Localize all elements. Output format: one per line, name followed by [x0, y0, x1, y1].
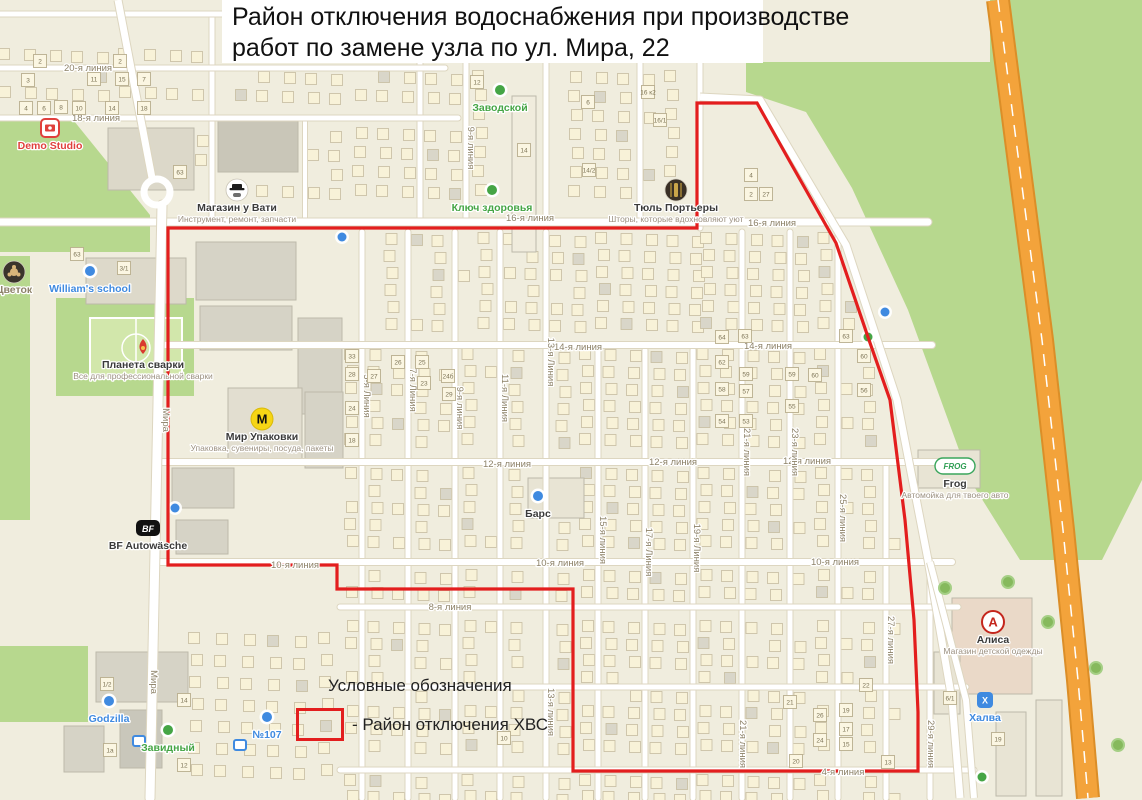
house-block: [647, 235, 658, 246]
map-title-line2: работ по замене узла по ул. Мира, 22: [232, 33, 763, 64]
house-block: [621, 188, 632, 199]
house-number: 16 к2: [640, 90, 656, 97]
house-number: 58: [718, 387, 726, 394]
house-block: [675, 370, 686, 381]
house-block: [192, 52, 203, 63]
map-screenshot: 20-я линия18-я линия16-я линия16-я линия…: [0, 0, 1142, 800]
house-block: [675, 710, 686, 721]
house-block: [864, 793, 875, 800]
house-block: [619, 112, 630, 123]
poi-label-magazin-u-vati[interactable]: Магазин у Вати: [197, 202, 277, 214]
legend-heading: Условные обозначения: [328, 676, 596, 696]
house-block: [571, 72, 582, 83]
building: [86, 258, 186, 304]
house-block: [271, 658, 282, 669]
house-block: [371, 639, 382, 650]
house-block: [865, 742, 876, 753]
house-number: 4: [749, 173, 753, 180]
house-block: [630, 487, 641, 498]
house-block: [652, 726, 663, 737]
house-block: [556, 421, 567, 432]
house-block: [98, 53, 109, 64]
house-block: [865, 572, 876, 583]
house-block: [306, 74, 317, 85]
house-block: [772, 321, 783, 332]
poi-icon-klyuch-zdorovya[interactable]: [485, 183, 500, 198]
house-block: [510, 419, 521, 430]
poi-label-tyul-portery[interactable]: Тюль Портьеры: [634, 202, 718, 214]
house-number: 27: [762, 192, 770, 199]
house-number: 14: [520, 148, 528, 155]
house-block: [559, 438, 570, 449]
poi-label-halva[interactable]: Халва: [969, 712, 1001, 724]
house-block: [862, 640, 873, 651]
house-block: [795, 387, 806, 398]
house-block: [378, 129, 389, 140]
house-block: [667, 147, 678, 158]
svg-text:A: A: [988, 615, 998, 630]
street-label: 29-я линия: [925, 720, 936, 768]
house-block: [283, 92, 294, 103]
house-block: [721, 622, 732, 633]
house-block: [768, 658, 779, 669]
house-block: [819, 570, 830, 581]
poi-label-zavodskoy[interactable]: Заводской: [472, 102, 527, 114]
poi-icon-zavidny[interactable]: [161, 723, 176, 738]
house-block: [465, 621, 476, 632]
poi-label-mir-upakovki[interactable]: Мир Упаковки: [226, 431, 299, 443]
house-number: 26: [816, 713, 824, 720]
house-block: [486, 367, 497, 378]
house-block: [217, 744, 228, 755]
house-block: [644, 303, 655, 314]
tree-icon: [1002, 576, 1014, 588]
house-block: [550, 321, 561, 332]
house-block: [416, 437, 427, 448]
house-block: [697, 775, 708, 786]
house-block: [218, 678, 229, 689]
house-number: 27: [370, 374, 378, 381]
poi-label-bf-autowasche[interactable]: BF Autowäsche: [109, 540, 188, 552]
house-number: 22: [862, 683, 870, 690]
house-block: [627, 385, 638, 396]
house-block: [606, 639, 617, 650]
house-block: [747, 572, 758, 583]
house-block: [604, 401, 615, 412]
house-block: [512, 657, 523, 668]
house-block: [348, 791, 359, 800]
house-block: [569, 91, 580, 102]
house-block: [466, 400, 477, 411]
house-block: [466, 570, 477, 581]
house-block: [415, 573, 426, 584]
poi-label-alisa[interactable]: Алиса: [977, 634, 1010, 646]
house-block: [459, 271, 470, 282]
house-block: [476, 90, 487, 101]
building: [64, 726, 104, 772]
poi-icon-tyul-portery[interactable]: [665, 179, 687, 201]
house-block: [196, 155, 207, 166]
house-block: [439, 591, 450, 602]
house-block: [329, 151, 340, 162]
house-block: [370, 520, 381, 531]
house-block: [841, 384, 852, 395]
house-block: [627, 725, 638, 736]
house-number: 3/1: [119, 266, 128, 273]
house-number: 60: [860, 354, 868, 361]
house-block: [486, 792, 497, 800]
house-block: [746, 623, 757, 634]
house-block: [604, 656, 615, 667]
poi-icon-cvetok[interactable]: [3, 261, 25, 283]
house-block: [650, 658, 661, 669]
house-block: [369, 571, 380, 582]
house-block: [651, 437, 662, 448]
house-block: [294, 659, 305, 670]
house-block: [368, 622, 379, 633]
house-block: [511, 368, 522, 379]
house-block: [392, 470, 403, 481]
house-block: [557, 625, 568, 636]
house-block: [815, 519, 826, 530]
house-block: [26, 88, 37, 99]
house-block: [241, 679, 252, 690]
house-block: [676, 659, 687, 670]
poi-icon-alisa[interactable]: A: [982, 611, 1004, 633]
house-block: [678, 472, 689, 483]
house-block: [285, 73, 296, 84]
house-block: [385, 285, 396, 296]
house-block: [432, 321, 443, 332]
house-block: [346, 383, 357, 394]
house-block: [370, 435, 381, 446]
house-block: [674, 591, 685, 602]
house-block: [774, 304, 785, 315]
house-block: [745, 504, 756, 515]
house-block: [725, 503, 736, 514]
house-block: [770, 471, 781, 482]
house-block: [652, 386, 663, 397]
street-label: 14-я линия: [554, 342, 602, 353]
street-label: 27-я линия: [885, 616, 896, 664]
house-block: [621, 234, 632, 245]
house-block: [653, 420, 664, 431]
house-block: [796, 254, 807, 265]
house-block: [724, 469, 735, 480]
street-label: 12-я линия: [483, 459, 531, 470]
house-block: [418, 420, 429, 431]
house-block: [725, 285, 736, 296]
house-number: 33: [348, 354, 356, 361]
house-block: [559, 779, 570, 790]
house-number: 63: [176, 170, 184, 177]
house-block: [331, 132, 342, 143]
house-number: 24б: [443, 373, 454, 381]
poi-icon-n107[interactable]: [260, 710, 275, 725]
house-block: [645, 252, 656, 263]
house-block: [571, 167, 582, 178]
poi-label-williams-school[interactable]: William's school: [49, 283, 131, 295]
house-block: [748, 351, 759, 362]
house-block: [560, 642, 571, 653]
house-block: [268, 746, 279, 757]
house-block: [674, 421, 685, 432]
house-block: [618, 74, 629, 85]
house-block: [419, 539, 430, 550]
house-block: [330, 189, 341, 200]
house-block: [698, 723, 709, 734]
street-label: 12-я линия: [649, 457, 697, 468]
house-block: [818, 536, 829, 547]
house-block: [863, 589, 874, 600]
house-block: [678, 387, 689, 398]
house-block: [818, 318, 829, 329]
house-block: [429, 188, 440, 199]
house-block: [722, 486, 733, 497]
house-block: [604, 486, 615, 497]
house-block: [192, 655, 203, 666]
house-block: [654, 794, 665, 800]
house-block: [677, 438, 688, 449]
house-block: [583, 621, 594, 632]
house-block: [866, 777, 877, 788]
house-block: [257, 186, 268, 197]
house-block: [772, 794, 783, 800]
house-block: [426, 169, 437, 180]
house-block: [219, 722, 230, 733]
house-block: [728, 302, 739, 313]
house-block: [770, 641, 781, 652]
house-block: [666, 109, 677, 120]
house-number: 54: [718, 419, 726, 426]
house-block: [865, 487, 876, 498]
poi-label-zavidny[interactable]: Завидный: [141, 742, 195, 754]
house-block: [557, 795, 568, 800]
house-block: [511, 623, 522, 634]
house-block: [701, 400, 712, 411]
house-block: [330, 94, 341, 105]
house-block: [450, 189, 461, 200]
house-block: [441, 404, 452, 415]
house-block: [504, 319, 515, 330]
house-number: 8: [59, 105, 63, 112]
house-block: [576, 271, 587, 282]
street-label: 10-я линия: [536, 558, 584, 569]
house-block: [348, 621, 359, 632]
house-block: [596, 130, 607, 141]
poi-icon-magazin-u-vati[interactable]: [226, 179, 248, 201]
house-block: [529, 320, 540, 331]
house-number: 15: [842, 742, 850, 749]
house-block: [676, 489, 687, 500]
house-block: [768, 488, 779, 499]
house-block: [746, 793, 757, 800]
poi-dot-icon: [171, 504, 180, 513]
house-block: [405, 73, 416, 84]
house-block: [820, 301, 831, 312]
house-block: [575, 322, 586, 333]
poi-label-cvetok[interactable]: Цветок: [0, 284, 33, 296]
house-block: [704, 250, 715, 261]
house-block: [651, 778, 662, 789]
svg-text:Х: Х: [982, 696, 988, 706]
house-block: [799, 271, 810, 282]
house-block: [844, 319, 855, 330]
house-block: [580, 519, 591, 530]
house-block: [0, 49, 10, 60]
house-block: [393, 504, 404, 515]
poi-icon-williams-school[interactable]: [83, 264, 98, 279]
poi-dot-icon: [978, 773, 987, 782]
house-block: [416, 778, 427, 789]
house-block: [581, 638, 592, 649]
house-block: [630, 572, 641, 583]
street-label: 16-я линия: [506, 213, 554, 224]
house-block: [604, 571, 615, 582]
house-block: [597, 73, 608, 84]
building: [218, 120, 298, 172]
house-number: 3: [26, 78, 30, 85]
house-block: [818, 791, 829, 800]
house-block: [440, 540, 451, 551]
house-block: [721, 707, 732, 718]
house-number: 6/1: [945, 696, 954, 703]
house-block: [0, 87, 11, 98]
house-block: [466, 740, 477, 751]
house-block: [580, 775, 591, 786]
house-block: [699, 587, 710, 598]
house-block: [596, 233, 607, 244]
poi-label-klyuch-zdorovya[interactable]: Ключ здоровья: [452, 202, 533, 214]
house-block: [216, 700, 227, 711]
poi-icon-zavodskoy[interactable]: [493, 83, 508, 98]
house-block: [772, 709, 783, 720]
house-block: [171, 51, 182, 62]
house-block: [723, 435, 734, 446]
poi-icon-frog[interactable]: FROG: [935, 458, 975, 474]
house-block: [770, 726, 781, 737]
house-block: [816, 383, 827, 394]
poi-icon-halva[interactable]: Х: [977, 692, 993, 708]
house-block: [669, 128, 680, 139]
house-block: [769, 778, 780, 789]
house-block: [775, 253, 786, 264]
house-block: [552, 304, 563, 315]
house-block: [584, 655, 595, 666]
house-block: [526, 303, 537, 314]
house-block: [650, 743, 661, 754]
house-block: [450, 94, 461, 105]
house-block: [595, 187, 606, 198]
house-number: 14: [180, 698, 188, 705]
house-block: [309, 93, 320, 104]
house-block: [724, 724, 735, 735]
park-area: [0, 646, 88, 722]
house-number: 24: [816, 738, 824, 745]
house-block: [600, 284, 611, 295]
house-block: [690, 305, 701, 316]
poi-label-godzilla[interactable]: Godzilla: [89, 713, 130, 725]
poi-label-frog[interactable]: Frog: [943, 478, 966, 490]
house-block: [747, 402, 758, 413]
house-block: [419, 794, 430, 800]
house-block: [525, 269, 536, 280]
street-label: 21-я линия: [737, 720, 748, 768]
house-block: [725, 588, 736, 599]
house-block: [654, 539, 665, 550]
poi-label-bars[interactable]: Барс: [525, 508, 551, 520]
house-block: [595, 92, 606, 103]
poi-icon-mir-upakovki[interactable]: M: [251, 408, 273, 430]
house-block: [842, 673, 853, 684]
poi-icon-bf-autowasche[interactable]: BF: [136, 520, 160, 536]
house-block: [700, 706, 711, 717]
house-block: [145, 50, 156, 61]
house-block: [572, 110, 583, 121]
house-block: [722, 571, 733, 582]
house-number: 63: [842, 334, 850, 341]
house-block: [368, 537, 379, 548]
house-block: [394, 623, 405, 634]
house-block: [369, 741, 380, 752]
house-block: [465, 366, 476, 377]
house-block: [747, 657, 758, 668]
house-block: [819, 485, 830, 496]
house-block: [190, 677, 201, 688]
poi-dot-icon: [338, 233, 347, 242]
house-block: [698, 638, 709, 649]
house-block: [862, 725, 873, 736]
house-block: [506, 302, 517, 313]
house-block: [243, 657, 254, 668]
poi-dot-icon: [881, 308, 890, 317]
house-block: [368, 792, 379, 800]
house-block: [426, 74, 437, 85]
poi-icon-demo-studio[interactable]: [41, 119, 59, 137]
house-block: [268, 636, 279, 647]
house-block: [748, 691, 759, 702]
house-number: 19: [994, 737, 1002, 744]
poi-icon-bars[interactable]: [531, 489, 546, 504]
house-block: [481, 250, 492, 261]
house-block: [416, 522, 427, 533]
house-block: [439, 421, 450, 432]
house-block: [381, 148, 392, 159]
house-block: [816, 468, 827, 479]
house-block: [668, 270, 679, 281]
house-block: [724, 639, 735, 650]
house-block: [699, 502, 710, 513]
house-block: [646, 286, 657, 297]
house-block: [866, 436, 877, 447]
house-block: [72, 52, 83, 63]
house-block: [370, 350, 381, 361]
house-block: [431, 287, 442, 298]
poi-label-demo-studio[interactable]: Demo Studio: [18, 140, 83, 152]
poi-icon-godzilla[interactable]: [102, 694, 117, 709]
house-block: [841, 469, 852, 480]
poi-subtitle-mir-upakovki: Упаковка, сувениры, посуда, пакеты: [191, 443, 334, 453]
house-number: 14/2: [583, 168, 596, 175]
poi-label-planeta-svarki[interactable]: Планета сварки: [102, 359, 184, 371]
house-block: [668, 90, 679, 101]
poi-subtitle-magazin-u-vati: Инструмент, ремонт, запчасти: [178, 214, 297, 224]
house-block: [557, 370, 568, 381]
poi-label-n107[interactable]: №107: [252, 729, 281, 741]
house-number: 26: [394, 360, 402, 367]
house-block: [559, 353, 570, 364]
house-number: 59: [788, 372, 796, 379]
